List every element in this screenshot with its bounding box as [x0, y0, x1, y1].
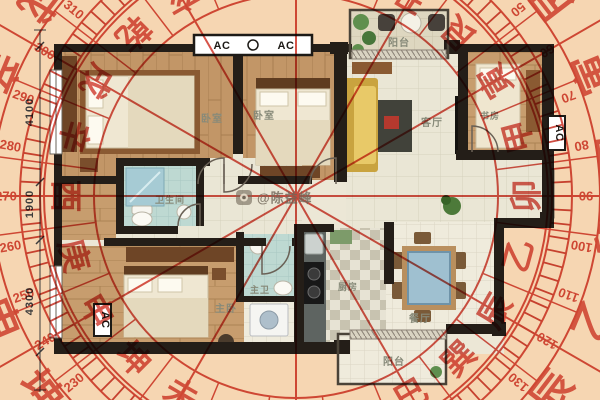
compass-tick — [20, 209, 40, 210]
dimension-1900: 1900 — [24, 190, 36, 218]
ac-label-top-left: AC — [214, 40, 231, 52]
floorplan-with-luopan-overlay: AC AC AC AC 卧室 卧室 客厅 书房 卫生间 主卧 主卫 厨房 餐厅 … — [0, 0, 600, 400]
compass-mountain: 卯 — [508, 180, 545, 213]
compass-tick — [20, 182, 40, 183]
compass-degree: 80 — [573, 137, 590, 154]
room-label-bedroom2: 卧室 — [253, 109, 275, 122]
room-label-bedroom1: 卧室 — [201, 112, 223, 125]
ac-label-top-right: AC — [278, 40, 295, 52]
compass-degree: 90 — [579, 189, 593, 204]
compass-tick — [552, 182, 572, 183]
window-sill-bottom — [350, 330, 446, 339]
compass-tick — [552, 209, 572, 210]
floorplan-luopan-screenshot: AC AC AC AC 卧室 卧室 客厅 书房 卫生间 主卧 主卫 厨房 餐厅 … — [0, 0, 600, 400]
watermark: @陈益峰 — [236, 190, 313, 206]
compass-mountain: 酉 — [48, 180, 85, 213]
watermark-text: @陈益峰 — [257, 191, 313, 206]
window-sill-top — [352, 50, 446, 59]
room-label-master-bath: 主卫 — [250, 284, 270, 295]
compass-degree: 270 — [0, 189, 17, 204]
room-label-balcony-top: 阳台 — [388, 36, 410, 49]
bedroom2-furniture — [256, 78, 330, 178]
room-label-dining: 餐厅 — [408, 312, 431, 325]
